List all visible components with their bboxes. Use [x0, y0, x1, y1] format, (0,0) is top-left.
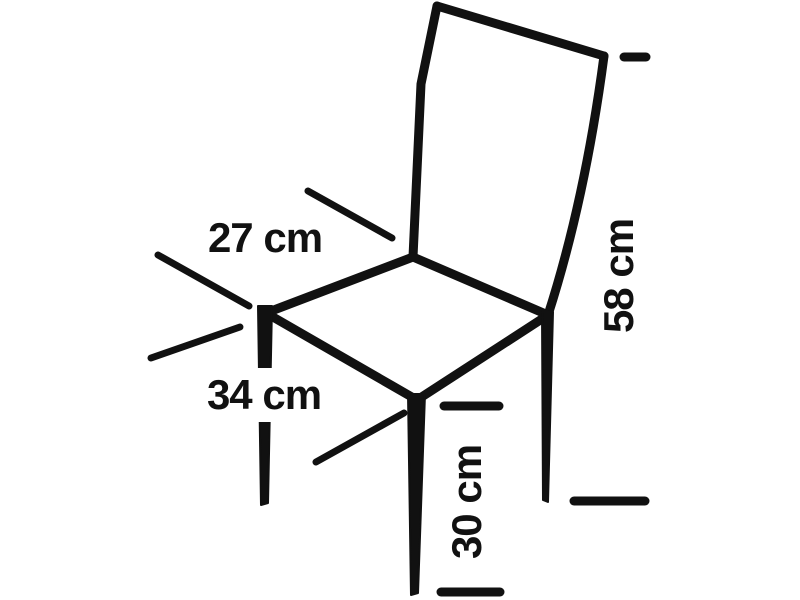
backrest-left-edge — [413, 6, 437, 257]
right-leg — [542, 312, 553, 502]
dim-label-backrest-height: 58 cm — [598, 219, 640, 333]
chair-dimension-diagram: 27 cm 34 cm 58 cm 30 cm — [0, 0, 800, 600]
dim-label-seat-back-edge: 27 cm — [208, 217, 322, 259]
dim-27-line-lower — [158, 255, 249, 306]
dim-34-line-left — [151, 327, 240, 358]
chair-legs — [258, 306, 553, 595]
chair-line-art — [0, 0, 800, 600]
dim-label-seat-front-edge: 34 cm — [197, 368, 331, 422]
dim-label-seat-height: 30 cm — [446, 445, 488, 559]
front-leg — [408, 394, 425, 595]
backrest-top-edge — [437, 6, 604, 56]
